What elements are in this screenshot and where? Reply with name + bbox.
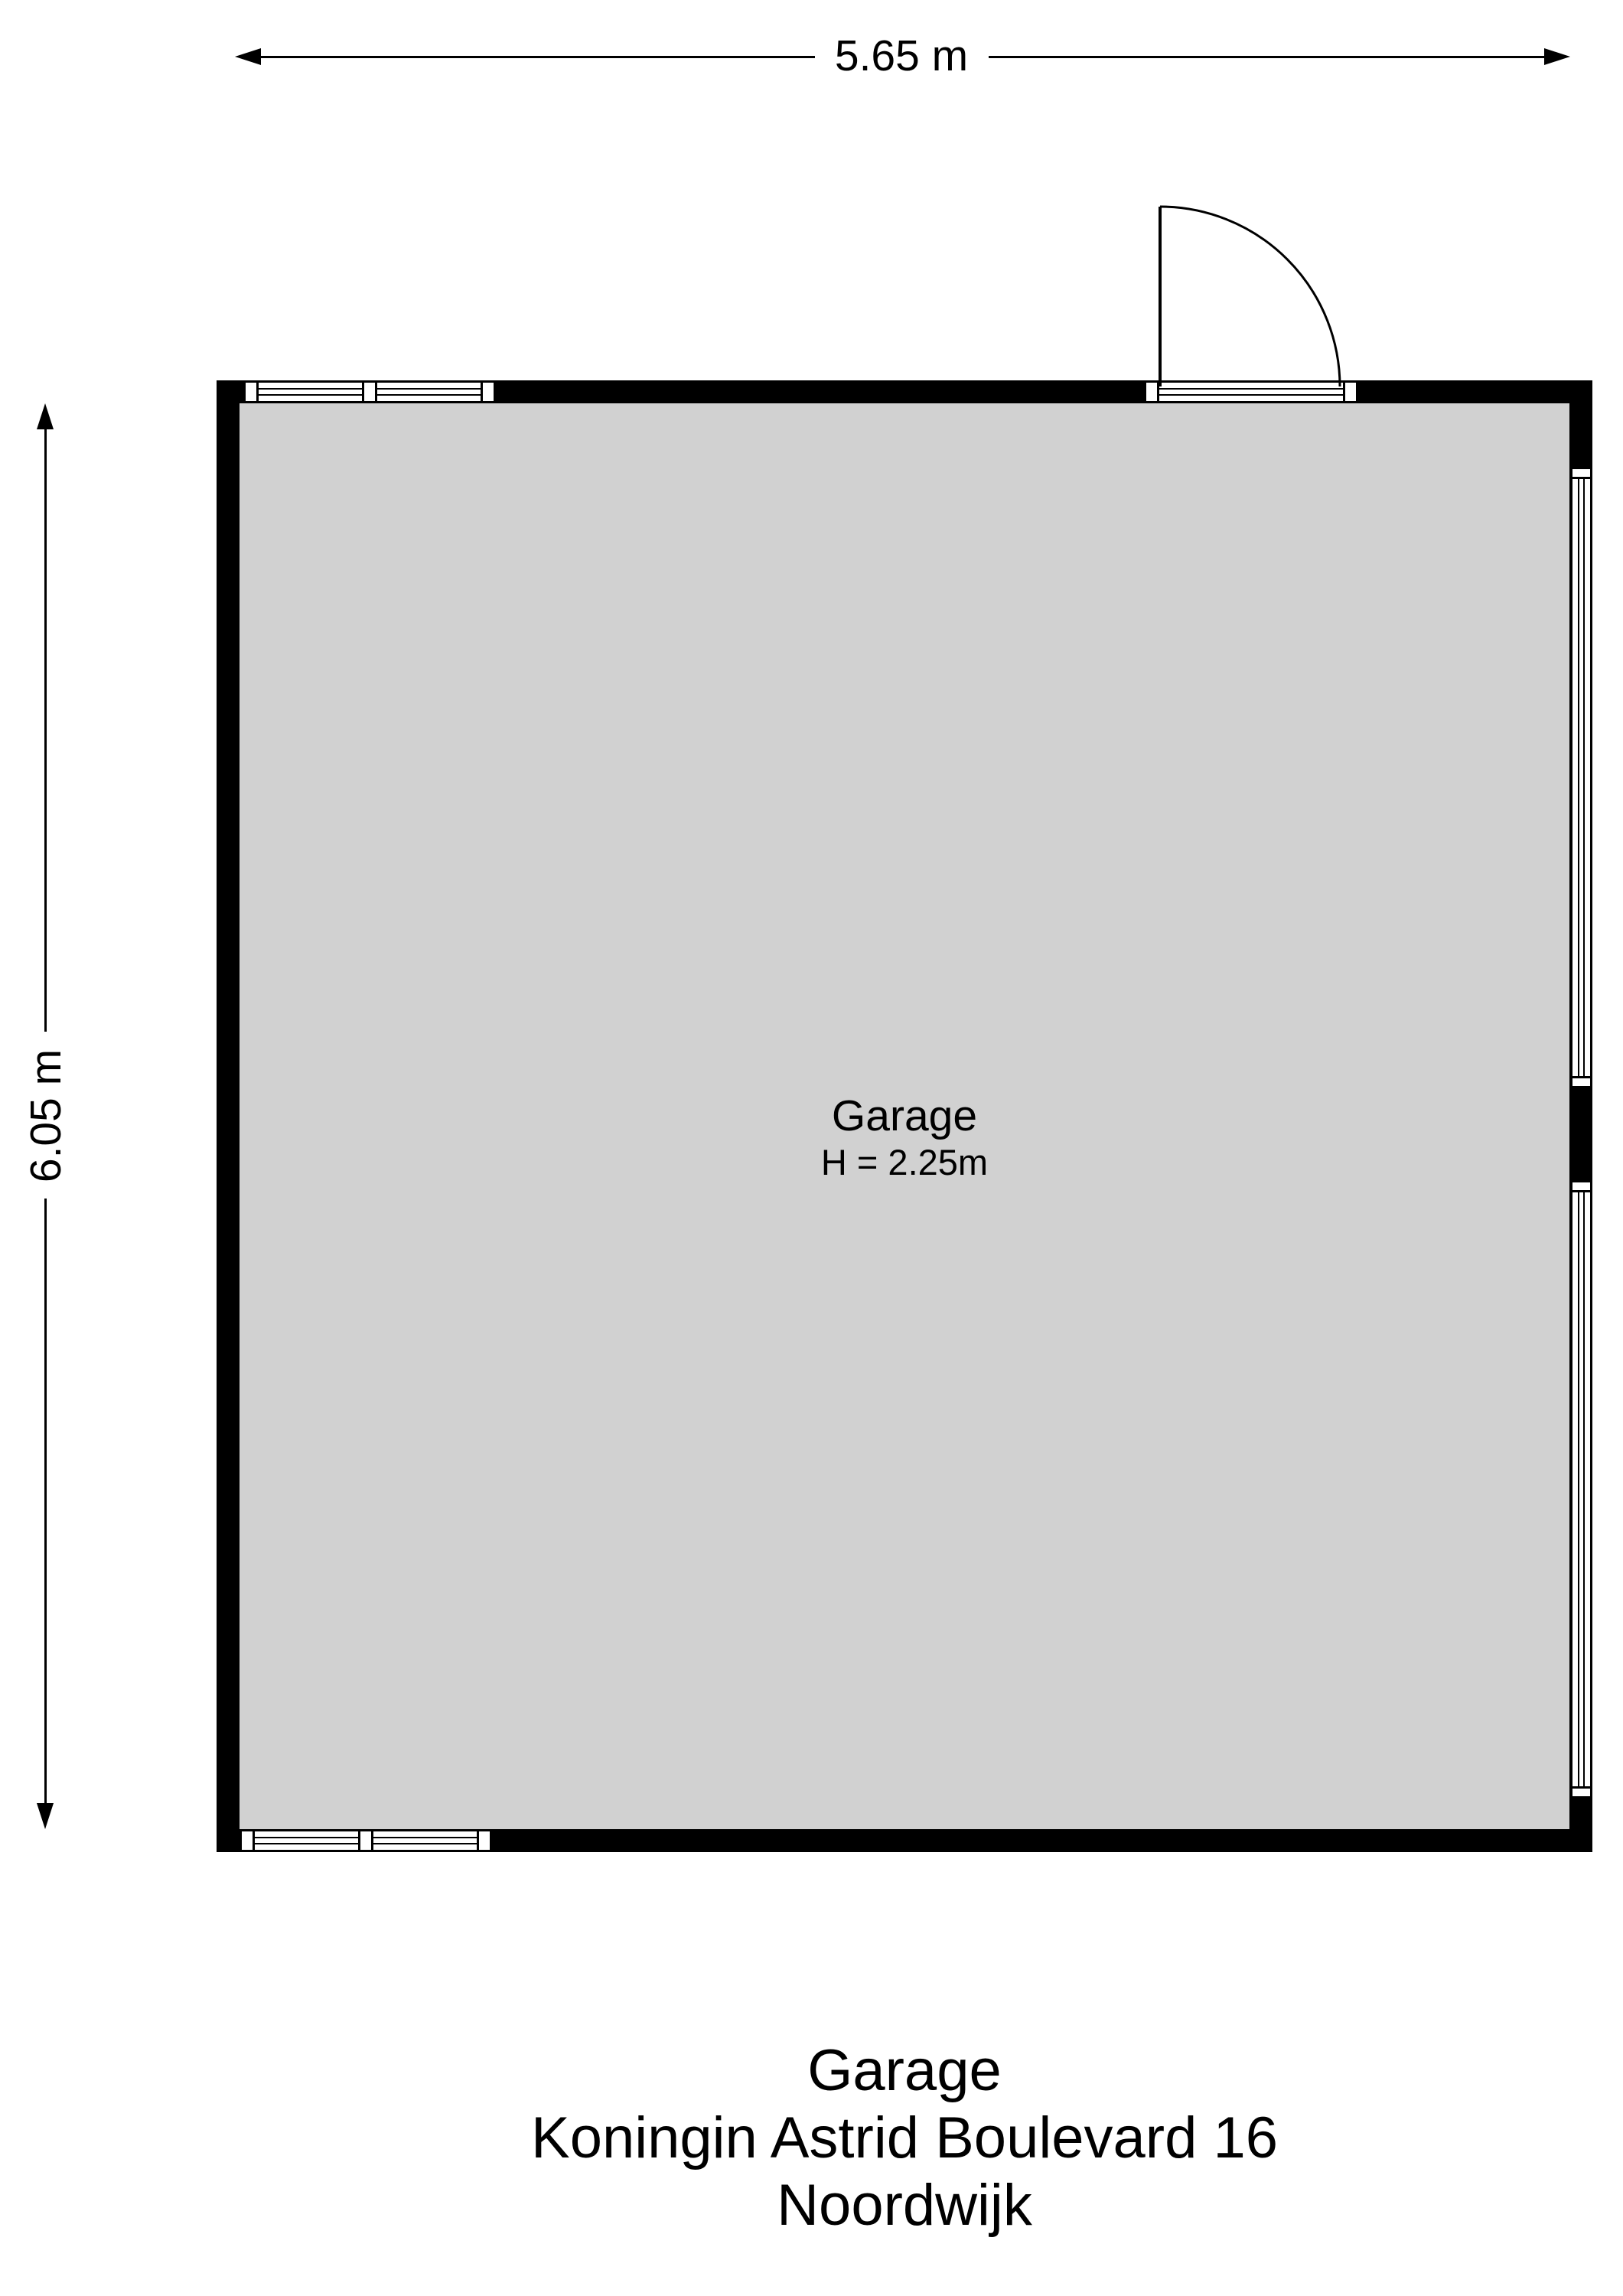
window-pane [1570, 1192, 1592, 1786]
window-mullion [358, 1829, 373, 1852]
dimension-left-label: 6.05 m [21, 1039, 71, 1193]
window-mullion [362, 380, 377, 403]
footer-room-title: Garage [531, 2037, 1278, 2105]
door-jamb [1144, 380, 1159, 403]
window-jamb [1570, 1180, 1592, 1192]
dimension-top-label: 5.65 m [824, 31, 979, 81]
door-jamb [1343, 380, 1358, 403]
dimension-top-line-left [256, 56, 815, 58]
room-height-note: H = 2.25m [821, 1141, 988, 1184]
door-opening [1144, 380, 1358, 403]
window-top [243, 380, 496, 403]
window-pane [1570, 479, 1592, 1076]
window-pane [377, 380, 481, 403]
window-right-lower [1570, 1180, 1592, 1799]
window-pane [255, 1829, 358, 1852]
dimension-left-line-top [44, 426, 47, 1032]
window-pane [373, 1829, 477, 1852]
window-jamb [477, 1829, 492, 1852]
window-bottom [240, 1829, 492, 1852]
window-pane [259, 380, 362, 403]
room-name: Garage [821, 1091, 988, 1141]
arrow-down-icon [37, 1803, 54, 1829]
room-label: Garage H = 2.25m [821, 1091, 988, 1184]
window-jamb [240, 1829, 255, 1852]
footer-city: Noordwijk [531, 2172, 1278, 2239]
window-jamb [243, 380, 259, 403]
footer-title-block: Garage Koningin Astrid Boulevard 16 Noor… [531, 2037, 1278, 2239]
dimension-left-line-bottom [44, 1199, 47, 1805]
window-right-upper [1570, 467, 1592, 1088]
floorplan-canvas: 5.65 m 6.05 m [0, 0, 1623, 2296]
arrow-right-icon [1544, 48, 1570, 65]
dimension-top-line-right [989, 56, 1547, 58]
window-jamb [1570, 1076, 1592, 1088]
window-jamb [1570, 1786, 1592, 1799]
window-jamb [1570, 467, 1592, 479]
window-jamb [481, 380, 496, 403]
footer-address: Koningin Astrid Boulevard 16 [531, 2105, 1278, 2172]
door-threshold [1159, 380, 1343, 403]
